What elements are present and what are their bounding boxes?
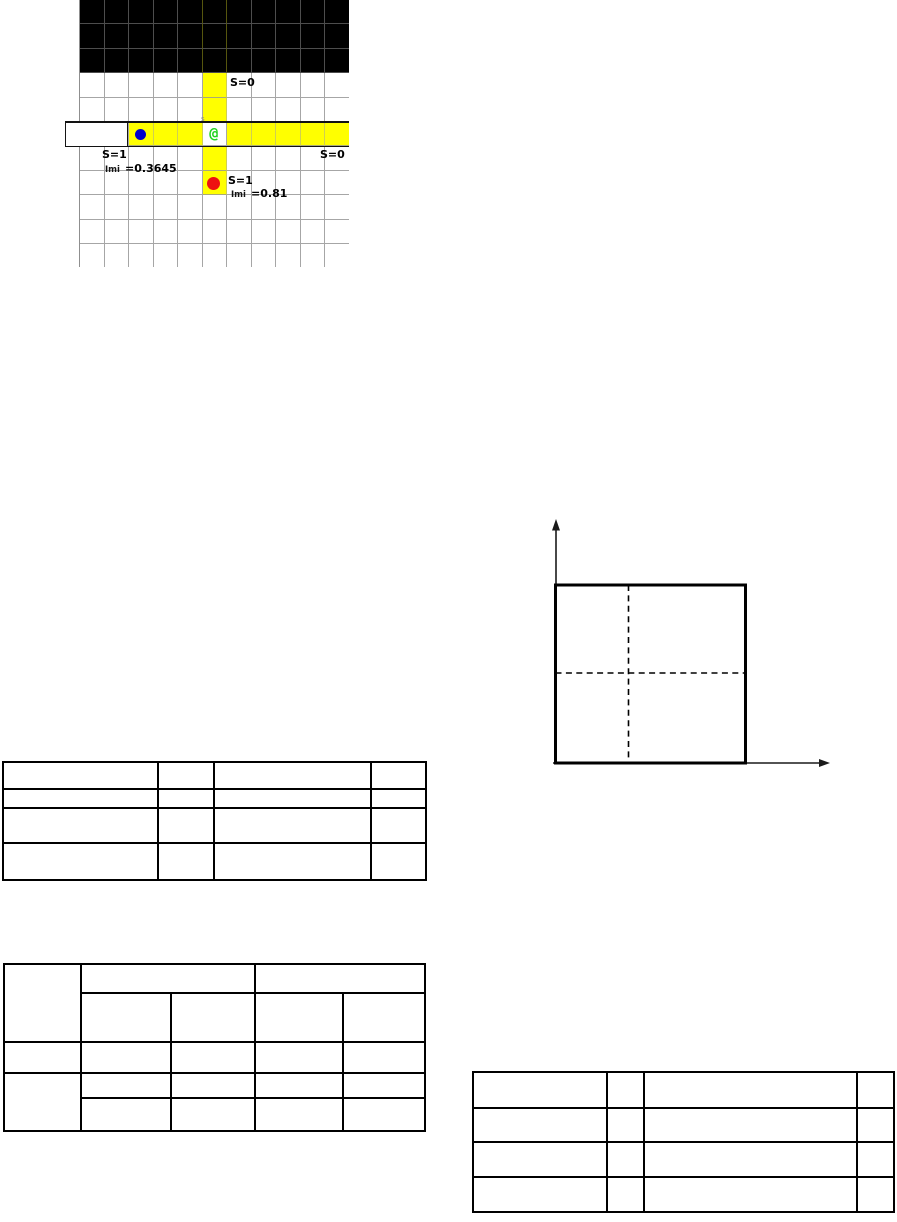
- table-cell: [81, 1073, 171, 1098]
- table-cell: [4, 1073, 81, 1131]
- blue-dot: [135, 129, 146, 140]
- maze-cell: [154, 24, 179, 48]
- table-cell: [473, 1142, 607, 1177]
- maze-cell: [80, 220, 105, 244]
- maze-cell: [301, 122, 326, 146]
- maze-cell: [325, 73, 349, 97]
- table-row: [473, 1108, 894, 1142]
- maze-cell: [252, 146, 277, 170]
- table-cell: [857, 1177, 894, 1212]
- table-cell: [158, 843, 214, 880]
- table-cell: [81, 1098, 171, 1131]
- red-dot: [207, 177, 220, 190]
- maze-cell: [154, 73, 179, 97]
- table-row: [3, 789, 426, 808]
- table-cell: [644, 1142, 857, 1177]
- maze-cell: [227, 122, 252, 146]
- maze-cell: [252, 220, 277, 244]
- table-cell: [607, 1108, 644, 1142]
- state-space-diagram: [545, 515, 837, 777]
- maze-cell: [178, 73, 203, 97]
- maze-cell: [80, 244, 105, 267]
- maze-cell: [203, 244, 228, 267]
- start-cell-inner: [103, 121, 129, 147]
- start-cell-outer: [65, 121, 104, 147]
- table-row: [473, 1177, 894, 1212]
- maze-cell: [301, 244, 326, 267]
- maze-cell: [203, 98, 228, 122]
- table-cell: [371, 808, 426, 843]
- maze-cell: [178, 0, 203, 24]
- table-cell: [214, 762, 371, 789]
- table-cell: [81, 993, 171, 1042]
- table-cell: [3, 789, 158, 808]
- table-row: [3, 808, 426, 843]
- table-cell: [171, 1073, 255, 1098]
- maze-cell: [252, 24, 277, 48]
- maze-cell: [276, 0, 301, 24]
- table-cell: [255, 993, 343, 1042]
- table-cell: [255, 1073, 343, 1098]
- maze-cell: [252, 122, 277, 146]
- maze-cell: [203, 49, 228, 73]
- maze-cell: [178, 220, 203, 244]
- maze-cell: [325, 122, 349, 146]
- maze-cell: [227, 146, 252, 170]
- maze-cell: [178, 146, 203, 170]
- maze-cell: [178, 49, 203, 73]
- maze-cell: [227, 0, 252, 24]
- maze-cell: [154, 98, 179, 122]
- table-cell: [644, 1177, 857, 1212]
- table-cell: [857, 1108, 894, 1142]
- gridworld-figure: @ s S=0 S=1 Imi =0.3645 S=0 S=1 Imi =0.8…: [62, 0, 349, 267]
- maze-cell: [301, 171, 326, 195]
- maze-cell: [325, 98, 349, 122]
- table-cell: [171, 993, 255, 1042]
- imi-goal-value: =0.81: [251, 187, 287, 200]
- table-cell: [607, 1142, 644, 1177]
- table-cell: [607, 1177, 644, 1212]
- maze-cell: [154, 195, 179, 219]
- maze-cell: [252, 49, 277, 73]
- maze-cell: [227, 49, 252, 73]
- table-cell: [81, 964, 255, 993]
- label-imi-goal: Imi =0.81: [231, 186, 287, 201]
- table-cell: [857, 1142, 894, 1177]
- maze-cell: [276, 73, 301, 97]
- maze-cell: [227, 220, 252, 244]
- maze-cell: [203, 220, 228, 244]
- maze-cell: [227, 24, 252, 48]
- maze-cell: [80, 0, 105, 24]
- table-row: [4, 964, 425, 993]
- table-row: [3, 843, 426, 880]
- table-cell: [473, 1108, 607, 1142]
- x-axis-arrowhead: [819, 759, 830, 767]
- maze-cell: [80, 146, 105, 170]
- maze-cell: [80, 73, 105, 97]
- maze-cell: [129, 244, 154, 267]
- table-cell: [158, 808, 214, 843]
- maze-cell: [80, 49, 105, 73]
- table-cell: [4, 964, 81, 1042]
- maze-cell: [325, 171, 349, 195]
- maze-cell: [301, 195, 326, 219]
- maze-cell: [301, 24, 326, 48]
- maze-cell: [203, 73, 228, 97]
- table-cell: [644, 1108, 857, 1142]
- maze-cell: [325, 49, 349, 73]
- maze-cell: [105, 220, 130, 244]
- maze-cell: [252, 98, 277, 122]
- maze-cell: [129, 98, 154, 122]
- table-cell: [255, 1042, 343, 1073]
- maze-cell: [105, 244, 130, 267]
- maze-cell: [105, 195, 130, 219]
- table-row: [473, 1072, 894, 1108]
- region-square: [556, 585, 746, 763]
- table-cell: [343, 1042, 425, 1073]
- table-cell: [343, 1098, 425, 1131]
- maze-cell: [325, 244, 349, 267]
- imi-goal-prefix: Imi: [231, 190, 246, 200]
- maze-cell: [325, 220, 349, 244]
- agent-symbol: @: [202, 123, 225, 145]
- maze-cell: [301, 49, 326, 73]
- table-cell: [3, 843, 158, 880]
- maze-cell: [325, 0, 349, 24]
- table-cell: [214, 808, 371, 843]
- maze-cell: [129, 73, 154, 97]
- table-row: [4, 1042, 425, 1073]
- maze-cell: [154, 49, 179, 73]
- maze-cell: [203, 0, 228, 24]
- label-s0-right: S=0: [320, 149, 345, 160]
- table-cell: [607, 1072, 644, 1108]
- table-row: [3, 762, 426, 789]
- maze-cell: [105, 0, 130, 24]
- maze-cell: [178, 98, 203, 122]
- maze-cell: [129, 0, 154, 24]
- table-bottom-left: [3, 963, 426, 1132]
- maze-cell: [80, 24, 105, 48]
- maze-cell: [154, 0, 179, 24]
- table-cell: [473, 1177, 607, 1212]
- table-cell: [371, 762, 426, 789]
- table-cell: [158, 789, 214, 808]
- maze-cell: [80, 195, 105, 219]
- maze-cell: [154, 220, 179, 244]
- table-cell: [343, 993, 425, 1042]
- maze-cell: [276, 244, 301, 267]
- table-row: [4, 1073, 425, 1098]
- table-cell: [214, 843, 371, 880]
- maze-cell: [129, 195, 154, 219]
- maze-cell: [252, 73, 277, 97]
- label-imi-start: Imi =0.3645: [105, 161, 177, 176]
- table-cell: [473, 1072, 607, 1108]
- maze-cell: [227, 98, 252, 122]
- maze-cell: [276, 122, 301, 146]
- table-cell: [171, 1042, 255, 1073]
- table-cell: [644, 1072, 857, 1108]
- table-cell: [3, 762, 158, 789]
- table-cell: [3, 808, 158, 843]
- maze-cell: [276, 24, 301, 48]
- label-s0-top: S=0: [230, 77, 255, 88]
- table-row: [473, 1142, 894, 1177]
- maze-cell: [178, 195, 203, 219]
- maze-cell: [129, 49, 154, 73]
- table-cell: [371, 843, 426, 880]
- maze-cell: [301, 73, 326, 97]
- table-cell: [4, 1042, 81, 1073]
- maze-cell: [301, 0, 326, 24]
- maze-cell: [105, 24, 130, 48]
- table-bottom-right: [472, 1071, 895, 1213]
- maze-cell: [80, 98, 105, 122]
- table-cell: [214, 789, 371, 808]
- maze-cell: [154, 122, 179, 146]
- document-page: @ s S=0 S=1 Imi =0.3645 S=0 S=1 Imi =0.8…: [0, 0, 897, 1222]
- table-top-left: [2, 761, 427, 881]
- maze-cell: [276, 98, 301, 122]
- table-cell: [255, 964, 425, 993]
- imi-start-value: =0.3645: [125, 162, 177, 175]
- maze-cell: [129, 220, 154, 244]
- maze-cell: [252, 244, 277, 267]
- maze-cell: [227, 244, 252, 267]
- maze-cell: [325, 24, 349, 48]
- table-cell: [81, 1042, 171, 1073]
- maze-cell: [203, 146, 228, 170]
- table-cell: [343, 1073, 425, 1098]
- maze-cell: [105, 98, 130, 122]
- maze-cell: [105, 49, 130, 73]
- table-cell: [171, 1098, 255, 1131]
- table-cell: [857, 1072, 894, 1108]
- maze-cell: [301, 98, 326, 122]
- maze-cell: [203, 24, 228, 48]
- table-cell: [255, 1098, 343, 1131]
- imi-start-prefix: Imi: [105, 165, 120, 175]
- maze-cell: [154, 244, 179, 267]
- table-cell: [371, 789, 426, 808]
- maze-cell: [325, 195, 349, 219]
- maze-cell: [301, 220, 326, 244]
- maze-cell: [203, 195, 228, 219]
- maze-cell: [80, 171, 105, 195]
- maze-cell: [178, 171, 203, 195]
- maze-cell: [252, 0, 277, 24]
- maze-cell: [276, 220, 301, 244]
- maze-cell: [178, 244, 203, 267]
- table-cell: [158, 762, 214, 789]
- maze-cell: [129, 24, 154, 48]
- maze-cell: [105, 73, 130, 97]
- maze-cell: [178, 122, 203, 146]
- y-axis-arrowhead: [552, 519, 560, 531]
- maze-cell: [178, 24, 203, 48]
- agent-superscript: s: [201, 115, 205, 123]
- maze-cell: [276, 146, 301, 170]
- maze-cell: [276, 49, 301, 73]
